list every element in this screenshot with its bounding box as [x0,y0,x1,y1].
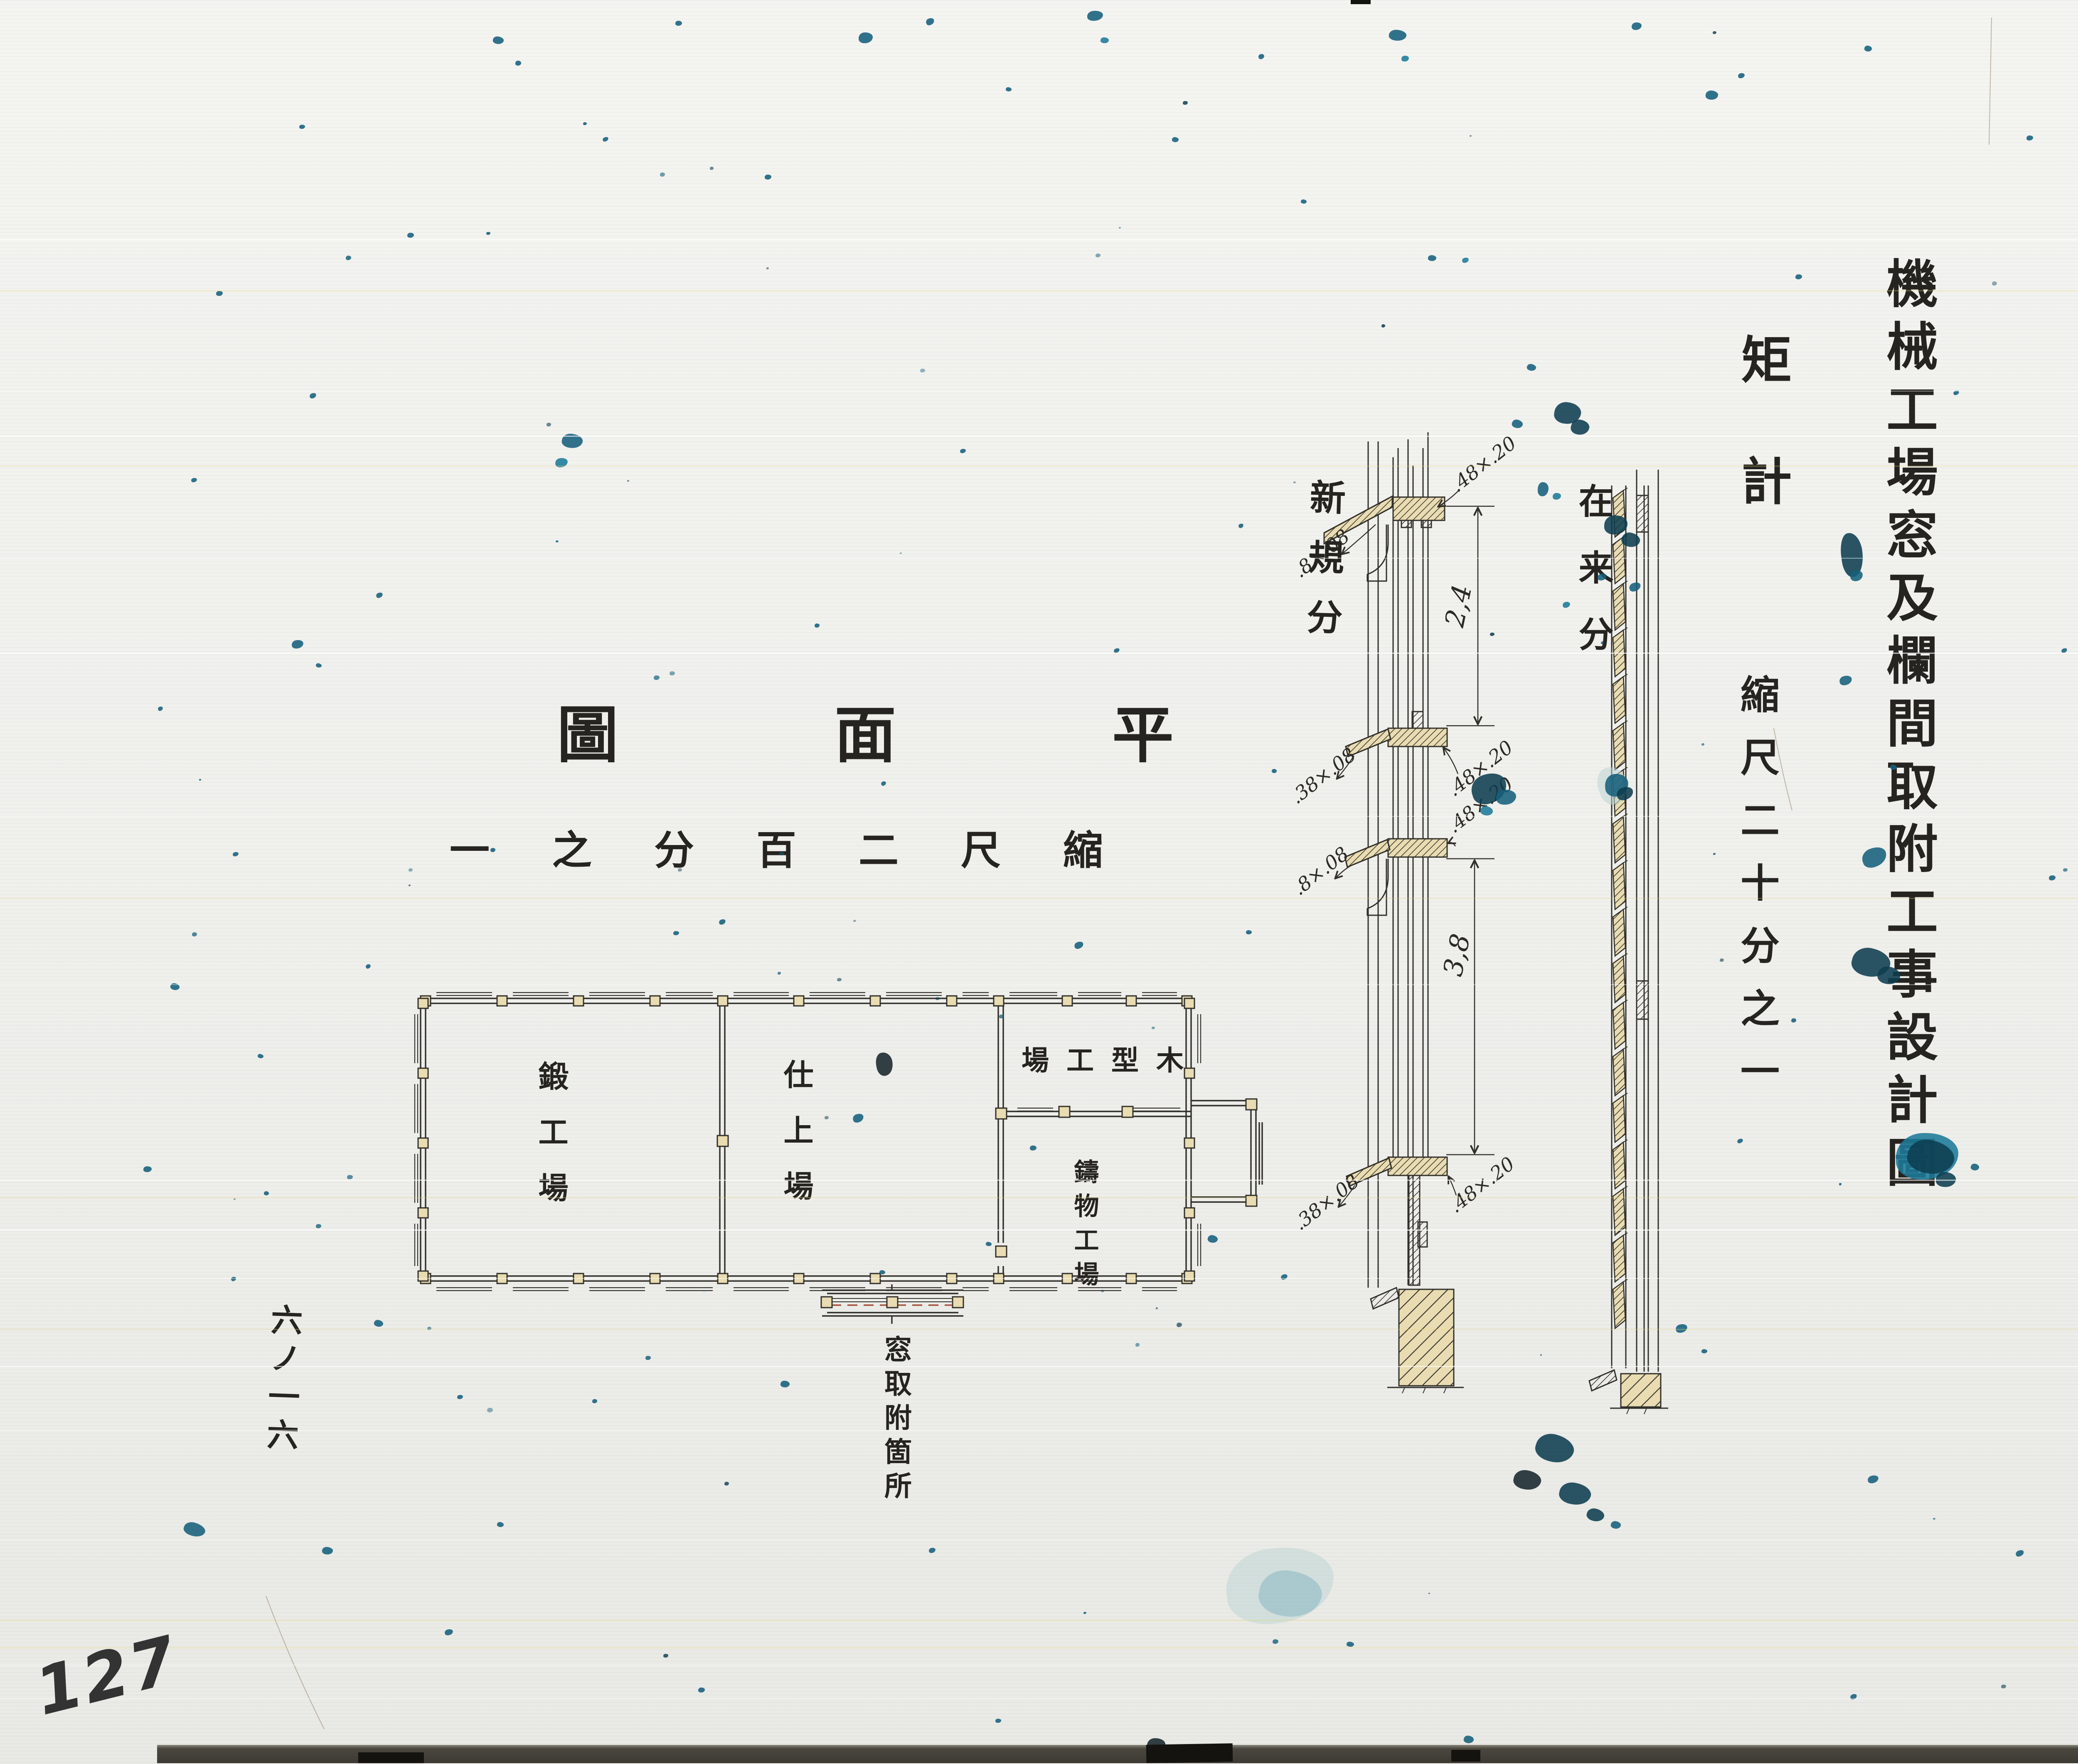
plan-title: 圖面平 [557,685,1390,774]
detail-scale: 縮尺二十分之一 [1728,674,1785,1114]
dim-upper-label: 2,4 [1439,582,1478,630]
note-sill-right: .48×.20 [1445,1152,1519,1217]
room-label-wood-pattern: 場工型木 [1022,1038,1201,1078]
note-sill-left: .38×.08 [1289,1170,1364,1234]
plan-note: 窓取附箇所 [875,1335,915,1505]
note-head-right: .48×.20 [1446,431,1521,496]
section-label-new: 新規分 [1294,478,1351,659]
section-new-foundation [1371,1288,1464,1393]
detail-title: 矩計 [1725,333,1798,576]
paper-creases [266,17,2078,1753]
section-existing-foundation [1589,1370,1668,1414]
scan-bottom-shadow [157,1745,2078,1763]
dim-lower [1446,859,1494,1155]
dim-lower-label: 3,8 [1438,931,1477,979]
room-label-finishing: 仕上場 [774,1059,817,1226]
section-new-sill [1347,1157,1447,1285]
scanned-blueprint: .8×.08 .48×.20 .38×.08 .48×.20 .8×.08 .4… [0,0,2078,1764]
plan-scale: 一之分百二尺縮 [450,818,1165,876]
main-title: 機械工場窓及欄間取附工事設計圖 [1869,257,1944,1198]
folio-number: 六ノ一六 [256,1303,307,1457]
section-new-rail2 [1345,839,1447,915]
room-label-forge: 鍛工場 [529,1061,572,1228]
room-label-casting: 鑄物工場 [1066,1159,1103,1295]
section-label-existing: 在来分 [1568,483,1618,682]
plan-annex [1191,1101,1262,1202]
